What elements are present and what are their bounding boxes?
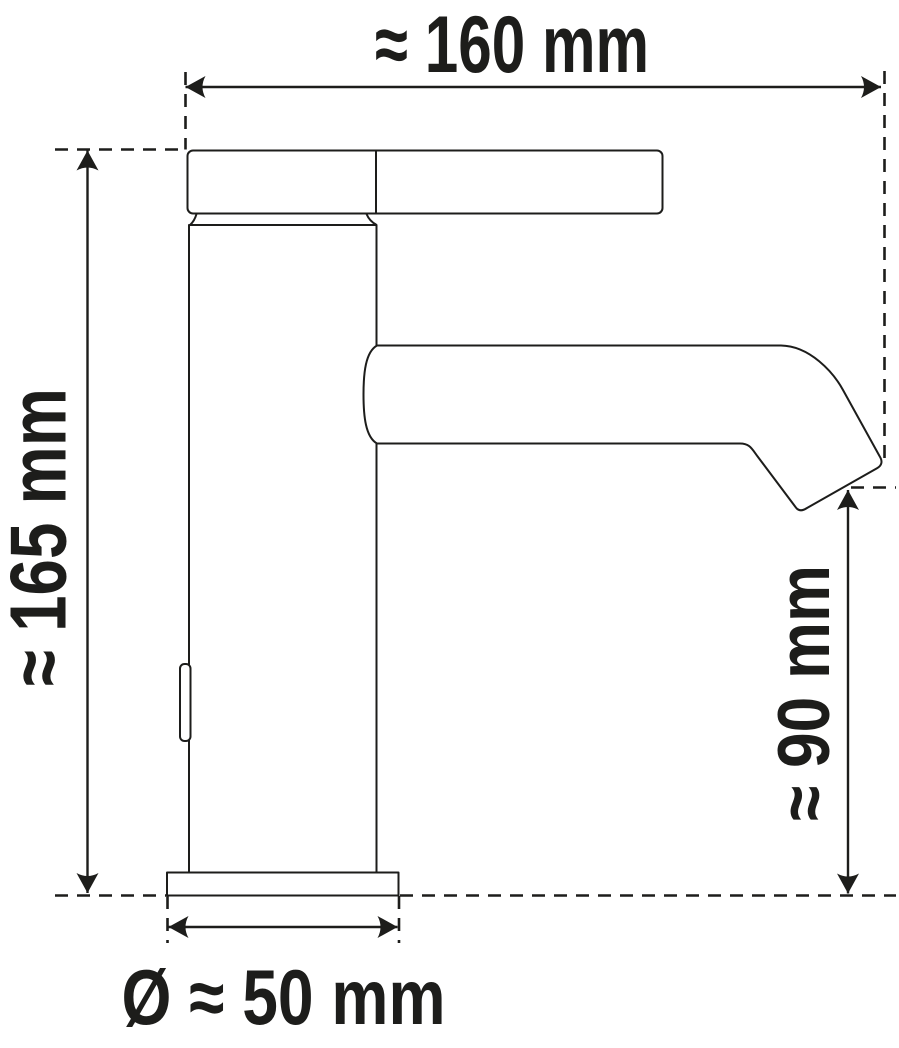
svg-text:≈ 90 mm: ≈ 90 mm <box>764 565 845 821</box>
svg-text:≈ 165 mm: ≈ 165 mm <box>0 388 83 686</box>
svg-text:Ø ≈ 50 mm: Ø ≈ 50 mm <box>122 953 446 1041</box>
svg-text:≈ 160 mm: ≈ 160 mm <box>375 0 649 90</box>
